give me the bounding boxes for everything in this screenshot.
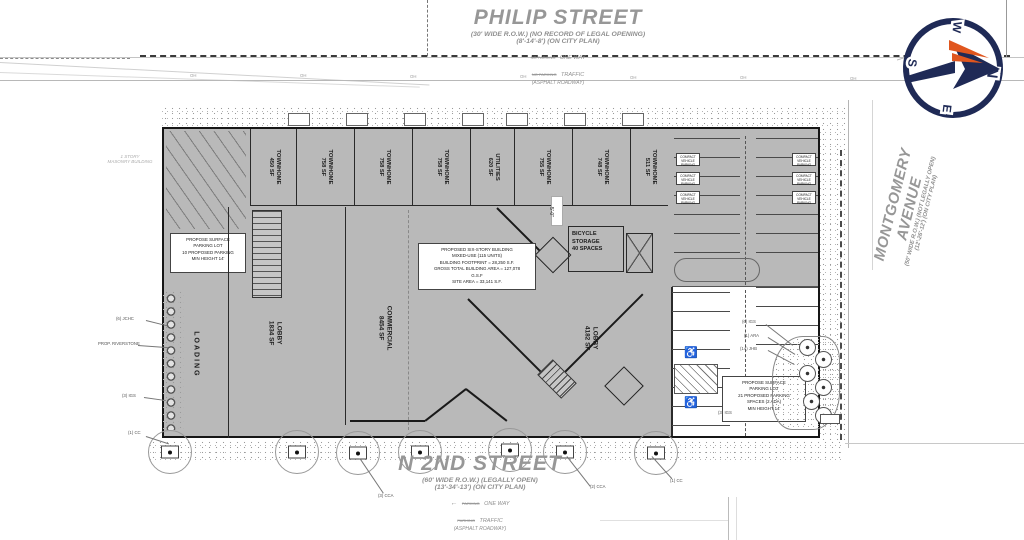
street-tree [275,430,319,474]
shrub [815,351,832,368]
philip-traffic-note-1: NO PARKING ONE WAY [408,46,708,64]
compact-line: PARKING [793,163,815,167]
plant-label-igs6: (6) IGS [742,319,756,324]
room-area: 1834 SF [267,321,274,346]
compact-line: PARKING [677,163,699,167]
riverstone-circles [164,292,178,430]
philip-row-note: (30' WIDE R.O.W.) (NO RECORD OF LEGAL OP… [408,31,708,38]
philip-surface-note: (ASPHALT ROADWAY) [408,80,708,86]
n2nd-street-title: N 2ND STREET [330,452,630,476]
shrub [803,393,820,410]
n2nd-traffic-note-2: PARKING TRAFFIC [330,509,630,527]
plant-label-igs3-east: (3) IGS [718,410,732,415]
unit-area: 450 SF [268,158,274,177]
utility-pad [820,414,840,424]
oh-label: OH [740,75,746,80]
unit-name: TOWNHOME [384,150,390,185]
plant-label-igs-west: (3) IGS [122,393,136,398]
unit-townhome-758a: TOWNHOME758 SF [297,129,355,205]
compact-line: PARKING [677,201,699,205]
tree-trunk-dot [654,451,658,455]
compass-s-label: S [905,58,920,68]
street-tree [634,431,678,475]
unit-townhome-450: TOWNHOME450 SF [251,129,297,205]
montgomery-avenue-block: MONTGOMERY AVENUE (50' WIDE R.O.W.) (NOT… [864,120,950,296]
philip-one-way: ONE WAY [560,55,585,61]
n2nd-street-block: N 2ND STREET (60' WIDE R.O.W.) (LEGALLY … [330,452,630,532]
tree-trunk-dot [295,450,299,454]
elevator-shaft [626,233,653,273]
montgomery-property-dashed [840,150,842,440]
room-area: 8454 SF [377,316,384,341]
montgomery-curb-line [848,100,849,448]
unit-area: 511 SF [644,158,650,176]
lobby-west-label: LOBBY 1834 SF [266,321,282,346]
shrub [815,379,832,396]
wall-loading [228,207,229,438]
note-line: SITE AREA = 33,141 S.F. [421,279,533,285]
philip-no-parking-1: NO PARKING [531,55,556,60]
compact-line: PARKING [677,182,699,186]
west-parking-note: PROPOSE SURFACE PARKING LOT 10 PROPOSED … [170,233,246,273]
unit-name: UTILITIES [493,153,499,180]
stoop [622,113,644,126]
se-road-line-2 [736,497,737,540]
compact-parking-sign: COMPACT VEHICLE PARKING [792,191,816,204]
dimension-text: 5'-0" [548,207,554,217]
n2nd-row-note: (60' WIDE R.O.W.) (LEGALLY OPEN) [330,477,630,484]
note-line: MIN HEIGHT 14' [173,256,243,262]
n2nd-parking-2: PARKING [457,518,475,523]
unit-area: 758 SF [378,158,384,177]
street-tree [148,430,192,474]
bicycle-storage-label: BICYCLE STORAGE 40 SPACES [572,231,602,254]
room-name: LOBBY [275,322,282,345]
plant-label-jchc: (6) JCHC [116,316,134,321]
compass-rose: N E S W [897,12,1009,124]
tree-planter [288,446,306,459]
compact-line: PARKING [793,201,815,205]
n2nd-traffic-note-1: ← PARKING ONE WAY [330,492,630,510]
philip-property-dashed-line-left [0,58,130,59]
philip-no-parking-2: NO PARKING [532,72,557,77]
compact-line: PARKING [793,182,815,186]
unit-area: 755 SF [538,158,544,177]
compass-e-label: E [940,104,955,114]
bike-label-line: STORAGE [572,239,602,247]
stair-core-west [252,210,282,298]
unit-townhome-511: TOWNHOME511 SF [631,129,669,205]
room-name: LOBBY [591,327,598,350]
building-note-box: PROPOSED SIX-STORY BUILDING MIXED-USE (1… [418,243,536,290]
compact-parking-sign: COMPACT VEHICLE PARKING [792,153,816,166]
ada-access-hatch [674,364,718,394]
tree-trunk-dot [168,450,172,454]
stoop [346,113,368,126]
philip-traffic: TRAFFIC [561,72,584,78]
unit-name: TOWNHOME [326,150,332,185]
n2nd-surface-note: (ASPHALT ROADWAY) [330,526,630,532]
unit-townhome-755: TOWNHOME755 SF [515,129,573,205]
unit-utilities-620: UTILITIES620 SF [471,129,515,205]
stoop [288,113,310,126]
room-name: LOADING [193,331,200,377]
se-road-line-1 [728,497,729,540]
unit-name: TOWNHOME [274,150,280,185]
montgomery-edge-line [872,100,873,270]
compact-parking-sign: COMPACT VEHICLE PARKING [676,191,700,204]
philip-street-block: PHILIP STREET (30' WIDE R.O.W.) (NO RECO… [408,6,708,86]
stoop [462,113,484,126]
bicycle-storage-room: BICYCLE STORAGE 40 SPACES [568,226,624,272]
lobby-east-label: LOBBY 4182 SF [582,326,598,351]
unit-area: 758 SF [436,158,442,177]
unit-townhome-758b: TOWNHOME758 SF [355,129,413,205]
tree-planter [161,446,179,459]
n2nd-parking-1: PARKING [462,501,480,506]
wall-lobby-commercial [345,207,346,425]
commercial-label: COMMERCIAL 8454 SF [376,306,392,351]
loading-label: LOADING [191,331,200,377]
n2nd-traffic: TRAFFIC [479,518,502,524]
unit-townhome-748: TOWNHOME748 SF [573,129,631,205]
oh-label: OH [300,73,306,78]
west-parking-stalls [166,131,246,229]
unit-name: TOWNHOME [442,150,448,185]
ada-parking-icon: ♿ [684,346,698,359]
townhome-row: TOWNHOME450 SF TOWNHOME758 SF TOWNHOME75… [250,129,668,206]
n2nd-one-way: ONE WAY [484,501,509,507]
philip-traffic-note-2: NO PARKING TRAFFIC [408,63,708,81]
philip-plan-note: (8'-14'-8') (ON CITY PLAN) [408,38,708,45]
commercial-dashdot-line [408,210,409,430]
shrub [799,365,816,382]
unit-area: 620 SF [487,158,493,177]
unit-area: 748 SF [596,158,602,177]
se-curb-line [845,443,1024,444]
storefront-line [350,420,425,422]
one-way-arrow-icon: ← [450,500,457,507]
plant-label-ara: (1) ARA [744,333,759,338]
compact-parking-sign: COMPACT VEHICLE PARKING [792,172,816,185]
oh-label: OH [190,73,196,78]
unit-name: TOWNHOME [602,150,608,185]
room-name: COMMERCIAL [386,306,393,351]
unit-name: TOWNHOME [544,150,550,185]
stoop [404,113,426,126]
shrub [799,339,816,356]
tree-planter [647,447,665,460]
bike-label-line: BICYCLE [572,231,602,239]
note-line: GROSS TOTAL BUILDING AREA = 127,078 [421,266,533,272]
ada-parking-icon: ♿ [684,396,698,409]
compact-parking-sign: COMPACT VEHICLE PARKING [676,153,700,166]
sidewalk-north [162,106,845,127]
bike-label-line: 40 SPACES [572,246,602,254]
se-road-line-3 [600,520,728,521]
dimension-tag-5ft: 5'-0" [551,196,563,226]
philip-street-title: PHILIP STREET [408,6,708,30]
unit-townhome-758c: TOWNHOME758 SF [413,129,471,205]
unit-area: 758 SF [320,158,326,177]
oh-label: OH [850,76,856,81]
drive-loop [674,258,760,282]
plant-label-riverstone: PROP. RIVERSTONE [98,341,140,346]
unit-name: TOWNHOME [651,150,657,185]
compact-parking-sign: COMPACT VEHICLE PARKING [676,172,700,185]
n2nd-plan-note: (13'-34'-13') (ON CITY PLAN) [330,484,630,491]
room-area: 4182 SF [583,326,590,351]
plant-label-cc-sw: (1) CC [128,430,141,435]
plant-label-jhb: (14) JHB [740,346,757,351]
stoop [506,113,528,126]
site-plan-canvas: OH OH OH OH OH OH OH PHILIP STREET (30' … [0,0,1024,540]
stoop [564,113,586,126]
